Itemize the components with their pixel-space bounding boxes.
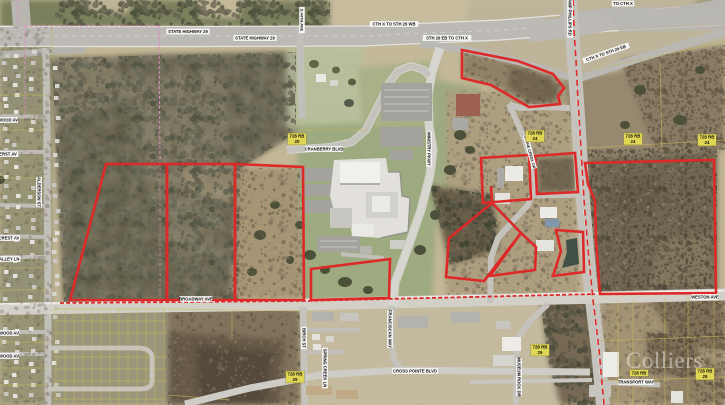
svg-text:Colliers: Colliers	[626, 348, 703, 373]
